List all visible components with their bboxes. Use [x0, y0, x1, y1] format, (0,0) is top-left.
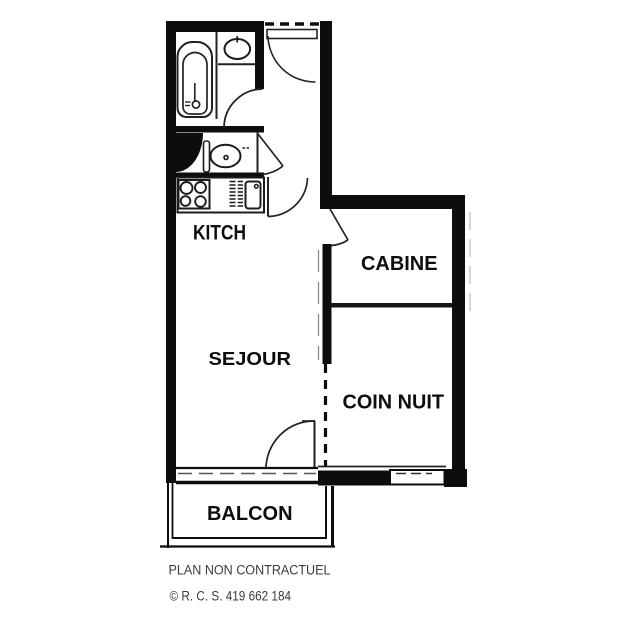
svg-text:© R. C. S. 419 662 184: © R. C. S. 419 662 184 — [170, 589, 292, 604]
svg-text:COIN NUIT: COIN NUIT — [343, 390, 445, 413]
svg-text:SEJOUR: SEJOUR — [209, 348, 292, 369]
svg-text:BALCON: BALCON — [207, 502, 293, 525]
svg-text:CABINE: CABINE — [361, 253, 438, 275]
svg-text:KITCH: KITCH — [193, 222, 246, 245]
svg-text:PLAN NON CONTRACTUEL: PLAN NON CONTRACTUEL — [169, 563, 331, 578]
